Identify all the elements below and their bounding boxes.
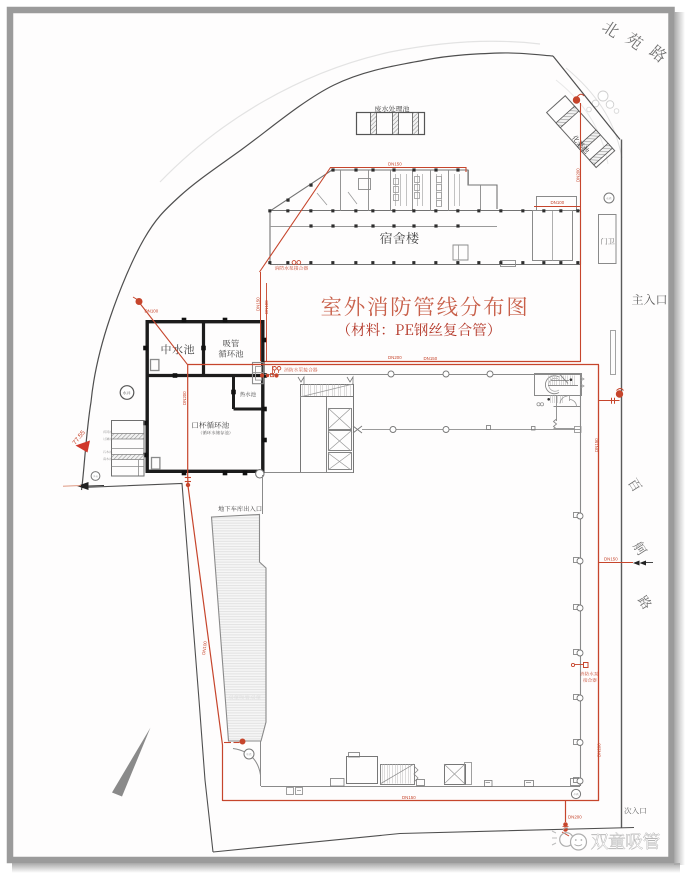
svg-text:DN150: DN150 xyxy=(594,438,599,452)
svg-text:DN200: DN200 xyxy=(568,815,582,820)
svg-text:DN200: DN200 xyxy=(597,743,602,757)
svg-text:DN200: DN200 xyxy=(575,168,580,182)
svg-text:DN100: DN100 xyxy=(264,300,269,314)
svg-text:DN150: DN150 xyxy=(604,557,618,562)
svg-text:DN150: DN150 xyxy=(388,162,402,167)
svg-text:DN100: DN100 xyxy=(551,200,565,205)
svg-text:DN100: DN100 xyxy=(145,309,159,314)
svg-text:DN150: DN150 xyxy=(402,795,416,800)
svg-text:DN150: DN150 xyxy=(424,356,438,361)
svg-text:DN200: DN200 xyxy=(388,355,402,360)
svg-text:DN150: DN150 xyxy=(255,297,260,311)
svg-text:DN200: DN200 xyxy=(182,391,187,405)
